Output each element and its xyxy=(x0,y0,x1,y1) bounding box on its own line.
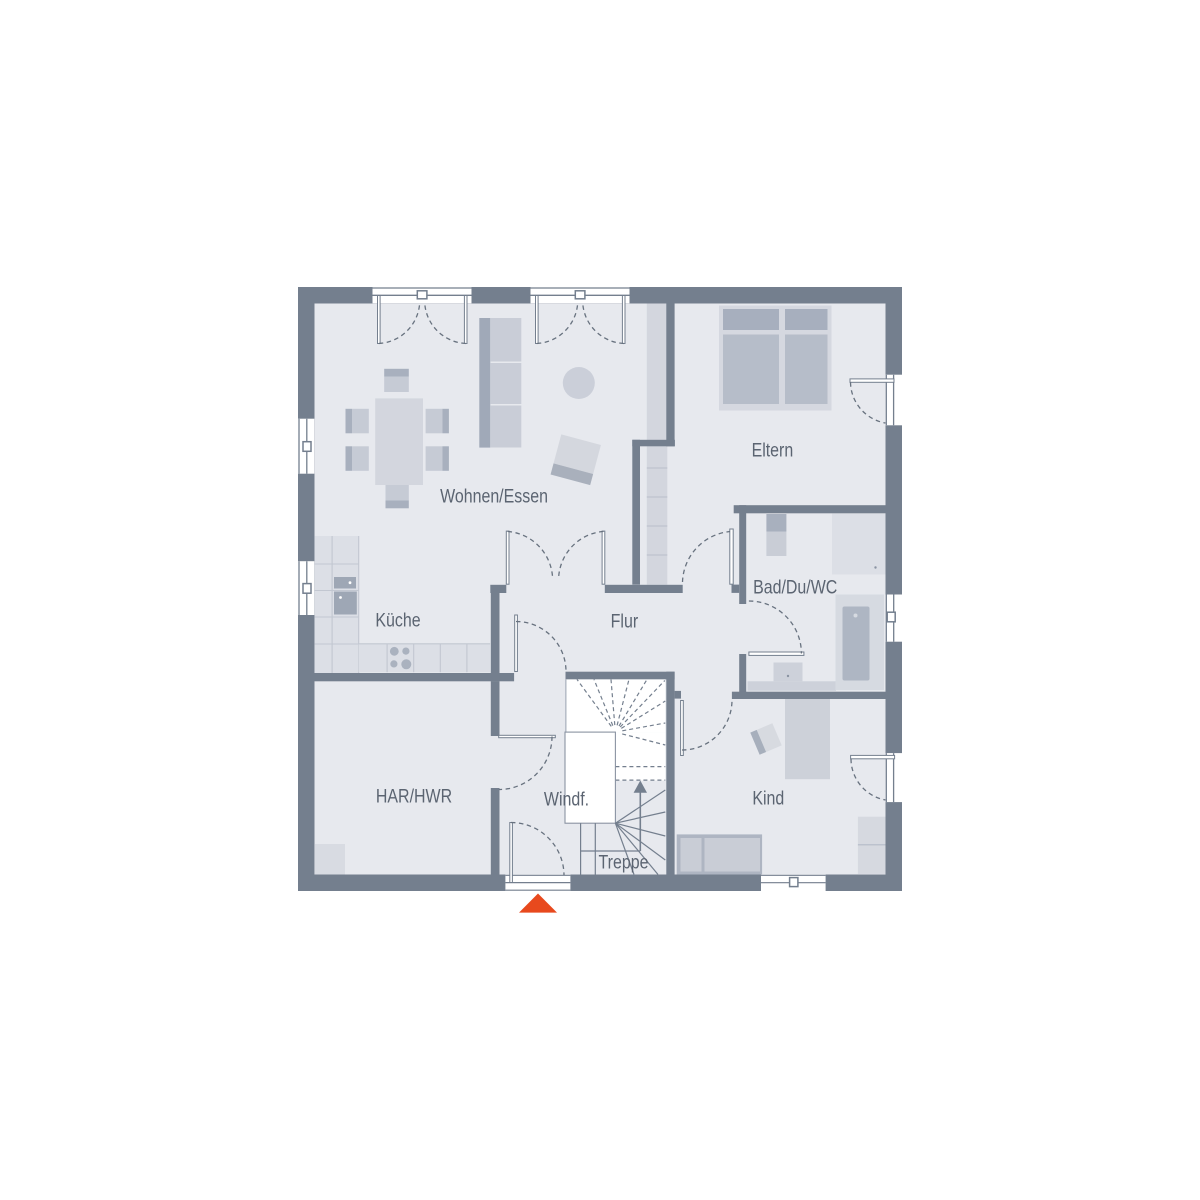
svg-text:Windf.: Windf. xyxy=(544,788,589,810)
svg-text:HAR/HWR: HAR/HWR xyxy=(376,785,452,807)
svg-text:Flur: Flur xyxy=(611,610,639,632)
svg-text:Bad/Du/WC: Bad/Du/WC xyxy=(753,576,837,598)
svg-text:Küche: Küche xyxy=(375,609,420,631)
svg-text:Treppe: Treppe xyxy=(599,851,649,873)
svg-text:Kind: Kind xyxy=(752,787,784,809)
svg-text:Wohnen/Essen: Wohnen/Essen xyxy=(440,485,548,507)
svg-text:Eltern: Eltern xyxy=(752,439,794,461)
